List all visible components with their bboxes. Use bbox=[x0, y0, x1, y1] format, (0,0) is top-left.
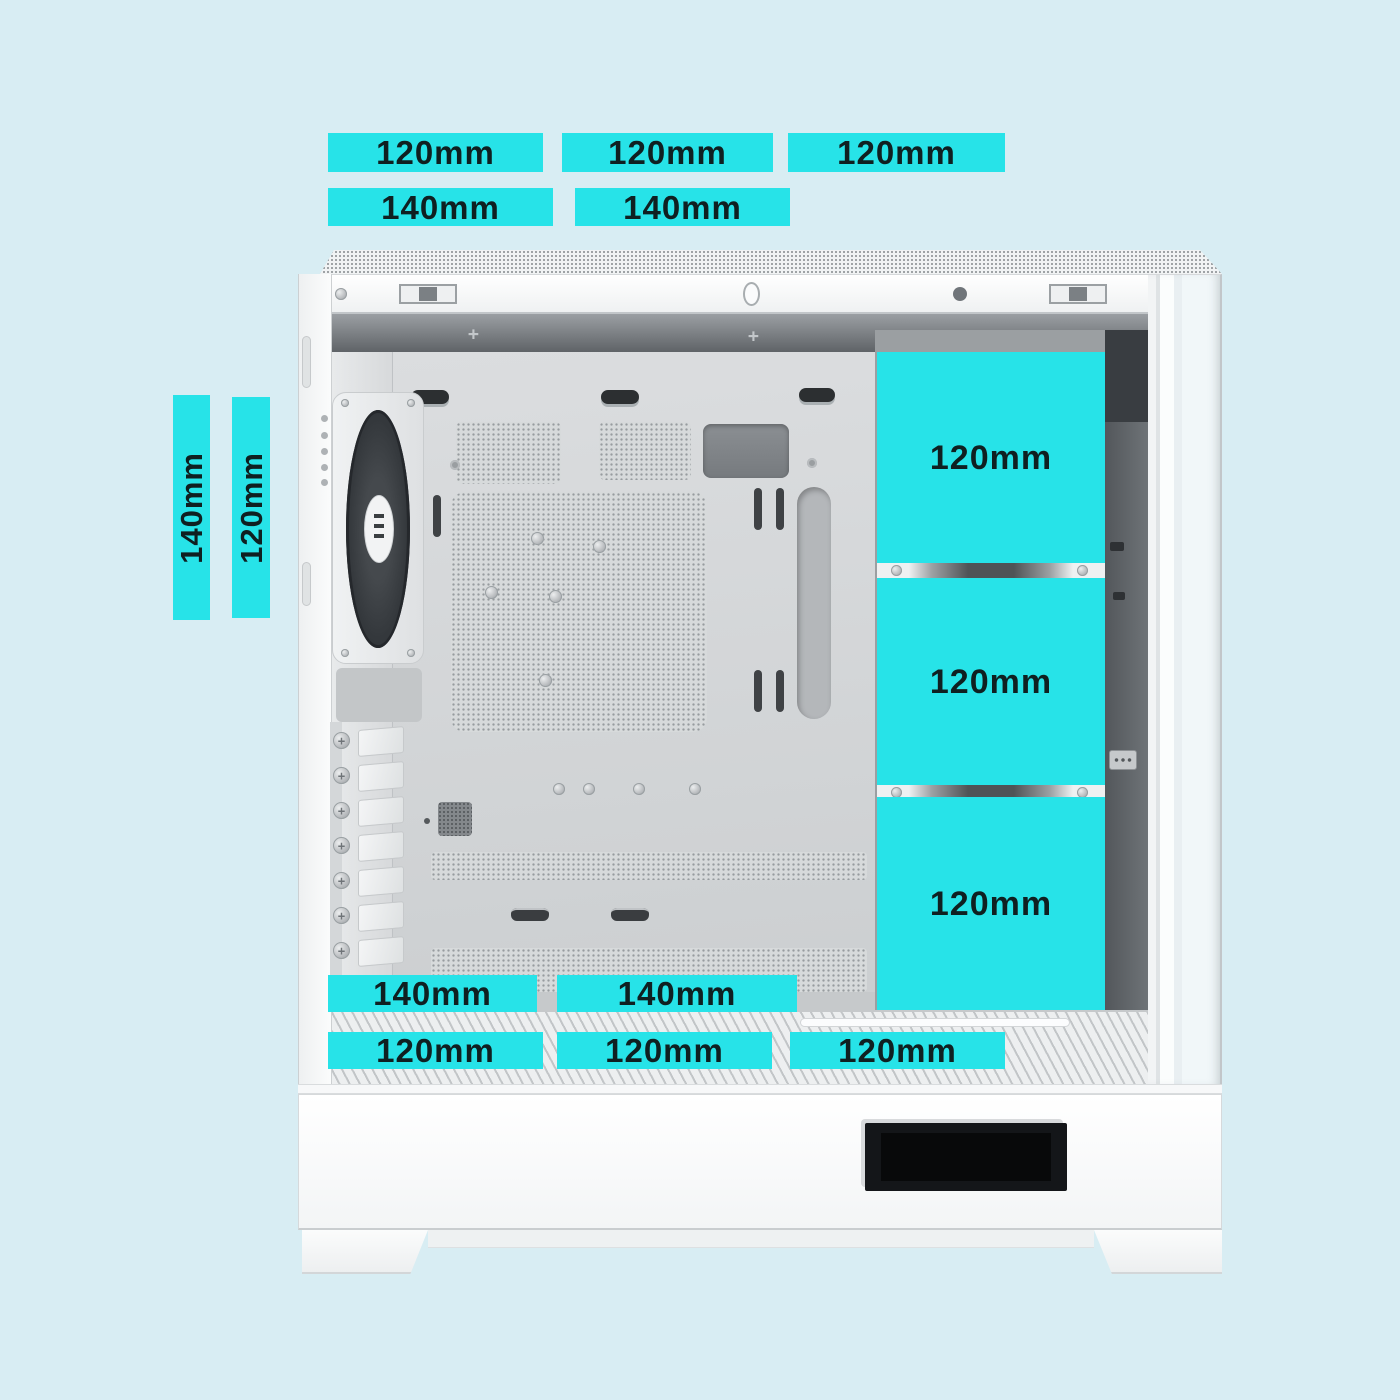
standoff bbox=[531, 532, 544, 545]
fan-size-label-bottom-140-1: 140mm bbox=[328, 975, 537, 1012]
rail-mark: + bbox=[748, 328, 759, 346]
top-oval-cutout bbox=[743, 282, 760, 306]
fan-size-label-top-120-2: 120mm bbox=[562, 133, 773, 172]
fan-size-label-front-3: 120mm bbox=[877, 797, 1105, 1010]
cable-cutout bbox=[703, 424, 789, 478]
rear-hole bbox=[321, 464, 328, 471]
fan-size-label-bottom-120-1: 120mm bbox=[328, 1032, 543, 1069]
motherboard-tray bbox=[392, 352, 875, 992]
cable-routing-slot bbox=[601, 390, 639, 404]
shroud-sill bbox=[298, 1084, 1222, 1094]
fan-screw bbox=[341, 649, 349, 657]
front-io-connector bbox=[1109, 750, 1137, 770]
pci-slot-cover bbox=[358, 866, 404, 897]
fan-screw bbox=[407, 649, 415, 657]
grommet bbox=[450, 460, 460, 470]
pci-slot-cover bbox=[358, 761, 404, 792]
pci-slot-cover bbox=[358, 936, 404, 967]
standoff bbox=[633, 783, 645, 795]
tie-slot bbox=[754, 488, 762, 530]
rear-vent-slot bbox=[302, 336, 311, 388]
standoff bbox=[689, 783, 701, 795]
tie-slot-horizontal bbox=[511, 908, 549, 921]
thumbscrew bbox=[333, 872, 350, 889]
fan-size-label-top-120-1: 120mm bbox=[328, 133, 543, 172]
expansion-slot-area bbox=[330, 722, 408, 976]
pci-slot-cover bbox=[358, 796, 404, 827]
tray-vent-mesh bbox=[599, 422, 691, 480]
rear-hole bbox=[321, 432, 328, 439]
front-fan-edge bbox=[877, 560, 1105, 580]
rear-vent-slot bbox=[302, 562, 311, 606]
fan-size-label-front-1: 120mm bbox=[877, 352, 1105, 563]
thumbscrew bbox=[333, 907, 350, 924]
bracket-top-corner bbox=[1105, 330, 1148, 422]
thumbscrew bbox=[333, 802, 350, 819]
dust-filter-handle bbox=[800, 1018, 1070, 1027]
rear-exhaust-fan bbox=[332, 392, 424, 664]
cable-channel bbox=[797, 487, 831, 719]
case-foot-right bbox=[1094, 1230, 1222, 1274]
fan-size-label-rear-120: 120mm bbox=[232, 397, 270, 618]
tie-slot bbox=[433, 495, 441, 537]
pci-slot-cover bbox=[358, 901, 404, 932]
top-vent-mesh bbox=[306, 250, 1222, 274]
rear-bracket bbox=[336, 668, 422, 722]
cable-routing-slot bbox=[799, 388, 835, 402]
thumbscrew bbox=[333, 732, 350, 749]
tie-slot bbox=[754, 670, 762, 712]
cpu-area-mesh bbox=[451, 492, 707, 732]
fan-size-label-top-140-1: 140mm bbox=[328, 188, 553, 226]
small-vent bbox=[438, 802, 472, 836]
standoff bbox=[485, 586, 498, 599]
mount-core bbox=[419, 287, 437, 301]
fan-size-label-bottom-140-2: 140mm bbox=[557, 975, 797, 1012]
rear-panel-edge bbox=[298, 274, 332, 1084]
label-text: 120mm bbox=[236, 452, 267, 564]
fan-size-label-front-2: 120mm bbox=[877, 578, 1105, 785]
tie-slot bbox=[776, 488, 784, 530]
thumbscrew bbox=[333, 837, 350, 854]
bracket-nub bbox=[1110, 542, 1124, 551]
rail-mark: + bbox=[468, 326, 479, 344]
fan-screw bbox=[891, 565, 902, 576]
fan-screw bbox=[407, 399, 415, 407]
fan-screw bbox=[1077, 565, 1088, 576]
standoff bbox=[583, 783, 595, 795]
front-fan-bracket bbox=[1105, 330, 1148, 1012]
fan-size-label-top-140-2: 140mm bbox=[575, 188, 790, 226]
fan-hub bbox=[364, 495, 394, 563]
tie-slot-horizontal bbox=[611, 908, 649, 921]
standoff bbox=[539, 674, 552, 687]
bracket-nub bbox=[1113, 592, 1125, 600]
tie-slot bbox=[776, 670, 784, 712]
standoff bbox=[549, 590, 562, 603]
top-panel-screw bbox=[335, 288, 347, 300]
standoff bbox=[593, 540, 606, 553]
pin-hole bbox=[424, 818, 430, 824]
fan-hub-logo bbox=[374, 514, 384, 544]
top-round-hole bbox=[953, 287, 967, 301]
mount-core bbox=[1069, 287, 1087, 301]
grommet bbox=[807, 458, 817, 468]
case-foot-left bbox=[302, 1230, 428, 1274]
top-panel bbox=[298, 274, 1222, 314]
underside-recess bbox=[428, 1230, 1094, 1248]
top-fan-mount-right bbox=[1049, 284, 1107, 304]
fan-size-label-top-120-3: 120mm bbox=[788, 133, 1005, 172]
psu-window bbox=[861, 1119, 1063, 1187]
fan-size-label-bottom-120-3: 120mm bbox=[790, 1032, 1005, 1069]
standoff bbox=[553, 783, 565, 795]
fan-size-label-bottom-120-2: 120mm bbox=[557, 1032, 772, 1069]
thumbscrew bbox=[333, 767, 350, 784]
rear-hole bbox=[321, 415, 328, 422]
annotated-pc-case-render: + + + bbox=[0, 0, 1400, 1400]
psu-window-glass bbox=[865, 1123, 1067, 1191]
thumbscrew bbox=[333, 942, 350, 959]
fan-screw bbox=[341, 399, 349, 407]
pci-slot-cover bbox=[358, 726, 404, 757]
shroud-vent-strip bbox=[431, 852, 867, 880]
fan-size-label-rear-140: 140mm bbox=[173, 395, 210, 620]
tray-vent-mesh bbox=[456, 422, 561, 484]
pci-slot-cover bbox=[358, 831, 404, 862]
front-glass-panel bbox=[1148, 274, 1222, 1084]
top-fan-mount-left bbox=[399, 284, 457, 304]
rear-hole bbox=[321, 448, 328, 455]
rear-hole bbox=[321, 479, 328, 486]
label-text: 140mm bbox=[176, 452, 207, 564]
lower-front-panel bbox=[298, 1094, 1222, 1230]
